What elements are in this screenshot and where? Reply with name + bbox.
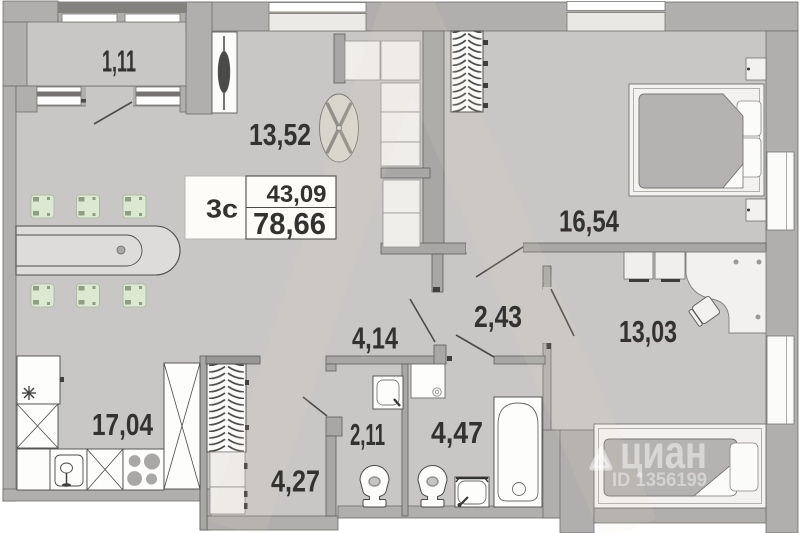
svg-text:4,27: 4,27 xyxy=(271,464,320,499)
svg-text:43,09: 43,09 xyxy=(267,181,327,208)
svg-text:17,04: 17,04 xyxy=(92,407,154,442)
svg-text:4,47: 4,47 xyxy=(431,415,483,450)
svg-text:13,03: 13,03 xyxy=(619,314,677,349)
svg-text:16,54: 16,54 xyxy=(559,204,620,239)
svg-text:1,11: 1,11 xyxy=(102,44,136,79)
svg-text:3c: 3c xyxy=(206,194,238,224)
svg-text:2,11: 2,11 xyxy=(350,417,385,452)
svg-text:ID 1356199: ID 1356199 xyxy=(612,470,707,491)
svg-text:78,66: 78,66 xyxy=(253,206,326,241)
svg-text:2,43: 2,43 xyxy=(474,299,522,334)
svg-text:4,14: 4,14 xyxy=(352,321,399,356)
svg-text:13,52: 13,52 xyxy=(249,117,311,152)
